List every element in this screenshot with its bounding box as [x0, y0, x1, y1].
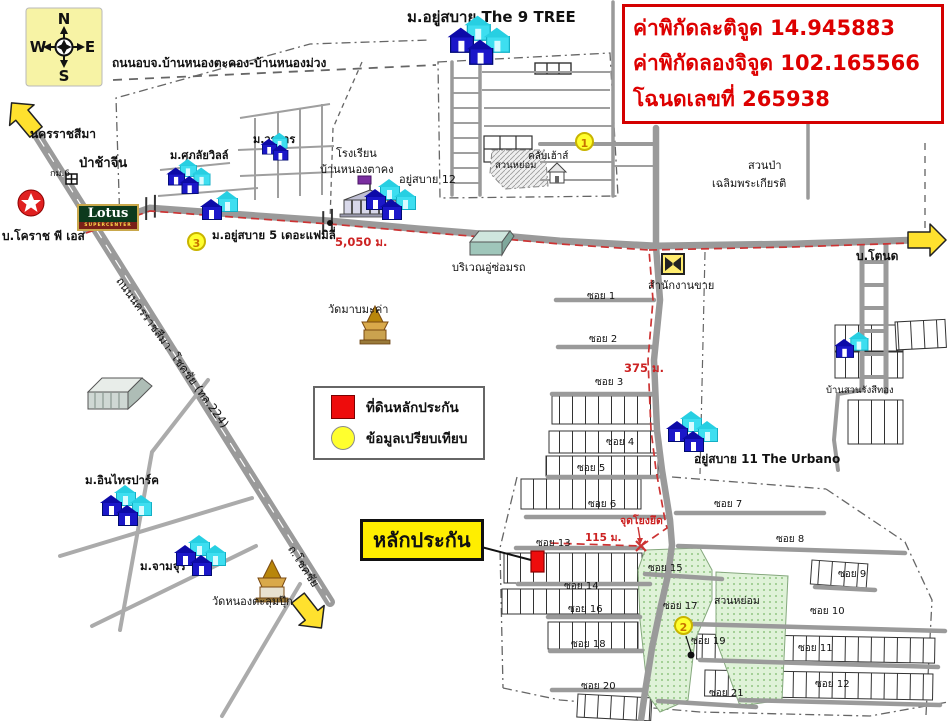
garden-pond [490, 150, 548, 189]
map-canvas: N S W E [0, 0, 950, 721]
legend-label: ที่ดินหลักประกัน [366, 396, 459, 418]
lotus-logo-sub: SUPERCENTER [79, 222, 137, 229]
road-junction-dot [327, 220, 333, 226]
temple-icon-nong-talumpuk [256, 560, 288, 602]
longitude-line: ค่าพิกัดลองจิจูด 102.165566 [633, 47, 933, 80]
coordinate-info-box: ค่าพิกัดละติจูด 14.945883 ค่าพิกัดลองจิจ… [622, 4, 944, 124]
compass-s: S [59, 67, 70, 85]
warehouse-icon-korat-ps [88, 378, 152, 409]
arrow-east [908, 224, 946, 256]
legend-label: ข้อมูลเปรียบเทียบ [366, 427, 467, 449]
school-icon [340, 176, 400, 217]
deed-number-line: โฉนดเลขที่ 265938 [633, 83, 933, 116]
lotus-logo: Lotus SUPERCENTER [77, 204, 139, 231]
yellow-circle-icon [331, 426, 355, 450]
red-square-icon [331, 395, 355, 419]
temple-icon-mab-makha [360, 306, 390, 344]
warehouse-icon-repair-shop [470, 231, 514, 255]
latitude-line: ค่าพิกัดละติจูด 14.945883 [633, 12, 933, 45]
collateral-parcel [531, 551, 544, 572]
clubhouse-icon [548, 163, 566, 183]
km6-marker-icon [66, 174, 77, 184]
legend-item-collateral: ที่ดินหลักประกัน [331, 395, 483, 419]
marker2-dot [688, 652, 695, 659]
collateral-tag: หลักประกัน [360, 519, 484, 561]
sales-office-icon [662, 254, 684, 274]
compass-rose: N S W E [26, 8, 102, 86]
route-red-dashed [86, 211, 912, 551]
fuel-station-logo-icon [18, 190, 44, 216]
legend-box: ที่ดินหลักประกัน ข้อมูลเปรียบเทียบ [313, 386, 485, 460]
legend-item-comparison: ข้อมูลเปรียบเทียบ [331, 426, 483, 450]
compass-n: N [58, 10, 71, 28]
compass-w: W [30, 38, 47, 56]
estate-street-grids [158, 72, 656, 200]
compass-e: E [85, 38, 95, 56]
lotus-logo-name: Lotus [79, 206, 137, 222]
